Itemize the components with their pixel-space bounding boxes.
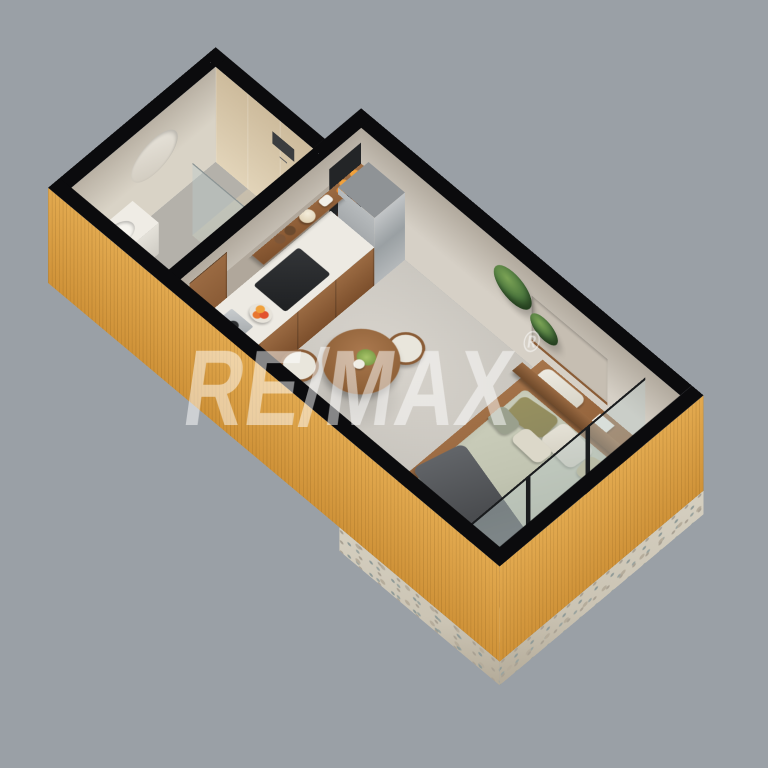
- shower-head: [272, 131, 294, 162]
- round-mirror: [131, 119, 178, 194]
- remax-watermark: RE/MAX®: [178, 334, 538, 442]
- canister: [318, 193, 335, 207]
- hanging-plant: [494, 256, 532, 319]
- floorplan-render: RE/MAX®: [0, 0, 768, 768]
- remax-watermark-text: RE/MAX: [177, 327, 522, 448]
